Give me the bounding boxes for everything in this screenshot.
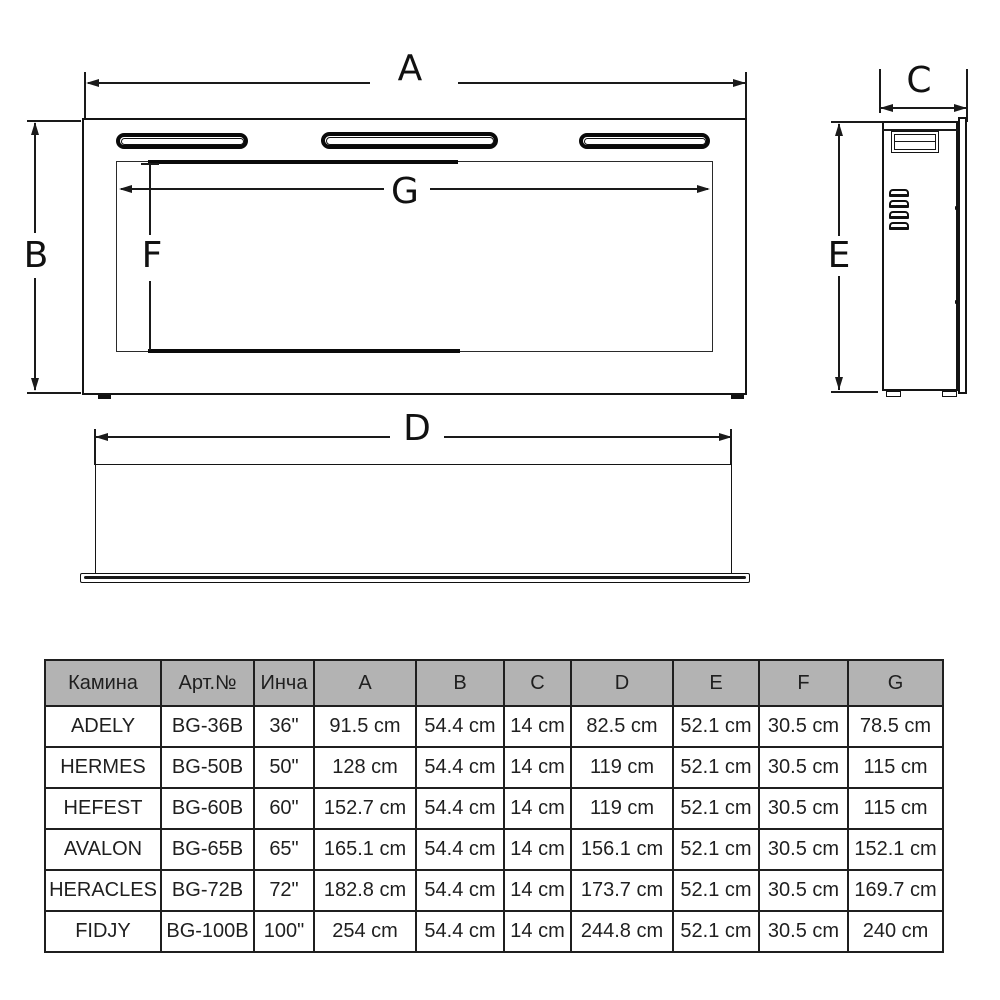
table-cell: 173.7 cm (571, 870, 673, 911)
dim-e-line (838, 124, 840, 236)
dim-d-line (96, 436, 390, 438)
dim-d-line (444, 436, 731, 438)
table-cell: 119 cm (571, 788, 673, 829)
dim-a-line (88, 82, 370, 84)
header-model: Камина (45, 660, 161, 706)
header-c: C (504, 660, 571, 706)
table-cell: HERMES (45, 747, 161, 788)
table-cell: 54.4 cm (416, 706, 504, 747)
table-cell: BG-36B (161, 706, 254, 747)
table-cell: 165.1 cm (314, 829, 416, 870)
dim-label-c: C (903, 63, 934, 99)
table-cell: BG-60B (161, 788, 254, 829)
table-row: HEFEST BG-60B 60" 152.7 cm 54.4 cm 14 cm… (45, 788, 943, 829)
table-cell: 30.5 cm (759, 706, 848, 747)
dim-g-line (430, 188, 708, 190)
louver-vent-icon (889, 222, 909, 230)
table-cell: 30.5 cm (759, 911, 848, 952)
heater-element-top (148, 160, 458, 165)
table-cell: 54.4 cm (416, 870, 504, 911)
dim-d-arrow-right (719, 433, 732, 441)
dim-g-line (121, 188, 384, 190)
table-header-row: Камина Арт.№ Инча A B C D E F G (45, 660, 943, 706)
dim-label-d: D (400, 411, 434, 447)
front-foot-left (98, 395, 111, 399)
table-cell: 14 cm (504, 788, 571, 829)
dim-e-line (838, 276, 840, 390)
dim-g-arrow-right (697, 185, 710, 193)
table-cell: 52.1 cm (673, 788, 759, 829)
table-cell: 91.5 cm (314, 706, 416, 747)
dim-b-arrow-down (31, 378, 39, 391)
vent-slot-inner (584, 138, 706, 145)
front-foot-right (731, 395, 744, 399)
louver-vent-icon (889, 200, 909, 208)
fireplace-dimension-sheet: A B G F C (0, 0, 1000, 1000)
table-cell: 152.1 cm (848, 829, 943, 870)
header-inches: Инча (254, 660, 314, 706)
table-cell: 254 cm (314, 911, 416, 952)
dim-b-arrow-up (31, 122, 39, 135)
control-box-inner (894, 134, 936, 150)
dim-f-line (149, 281, 151, 350)
dim-label-e: E (825, 238, 854, 274)
side-top-lip (876, 121, 884, 123)
vent-slot-inner (326, 137, 494, 145)
header-d: D (571, 660, 673, 706)
table-cell: 169.7 cm (848, 870, 943, 911)
table-cell: 52.1 cm (673, 829, 759, 870)
table-cell: 30.5 cm (759, 870, 848, 911)
dim-b-line (34, 123, 36, 233)
table-cell: HEFEST (45, 788, 161, 829)
vent-slot-right (579, 133, 710, 149)
table-cell: 30.5 cm (759, 788, 848, 829)
base-strip-bar (84, 576, 746, 580)
table-cell: 152.7 cm (314, 788, 416, 829)
dim-label-b: B (21, 238, 52, 274)
header-e: E (673, 660, 759, 706)
table-row: HERACLES BG-72B 72" 182.8 cm 54.4 cm 14 … (45, 870, 943, 911)
dim-a-arrow-right (733, 79, 746, 87)
dim-b-tick-bottom (27, 392, 81, 394)
dim-c-arrow-right (954, 104, 967, 112)
table-cell: 182.8 cm (314, 870, 416, 911)
table-cell: 119 cm (571, 747, 673, 788)
header-b: B (416, 660, 504, 706)
dim-e-arrow-down (835, 377, 843, 390)
dim-c-ext-right (966, 69, 968, 122)
table-cell: 82.5 cm (571, 706, 673, 747)
table-cell: 54.4 cm (416, 829, 504, 870)
header-art-no: Арт.№ (161, 660, 254, 706)
header-f: F (759, 660, 848, 706)
table-cell: 65" (254, 829, 314, 870)
table-cell: 30.5 cm (759, 747, 848, 788)
table-cell: 54.4 cm (416, 911, 504, 952)
dim-e-arrow-up (835, 123, 843, 136)
vent-slot-inner (121, 138, 244, 145)
side-body (882, 121, 958, 391)
table-row: FIDJY BG-100B 100" 254 cm 54.4 cm 14 cm … (45, 911, 943, 952)
louver-vent-icon (889, 189, 909, 197)
table-cell: 244.8 cm (571, 911, 673, 952)
table-cell: ADELY (45, 706, 161, 747)
dim-b-line (34, 278, 36, 390)
table-cell: FIDJY (45, 911, 161, 952)
table-cell: 52.1 cm (673, 747, 759, 788)
table-cell: HERACLES (45, 870, 161, 911)
base-strip (80, 573, 750, 583)
table-row: HERMES BG-50B 50" 128 cm 54.4 cm 14 cm 1… (45, 747, 943, 788)
louver-vent-icon (889, 211, 909, 219)
table-cell: BG-72B (161, 870, 254, 911)
side-foot-right (942, 391, 957, 397)
dim-label-a: A (395, 51, 426, 87)
table-cell: 52.1 cm (673, 870, 759, 911)
table-cell: 72" (254, 870, 314, 911)
table-cell: 14 cm (504, 706, 571, 747)
table-cell: BG-50B (161, 747, 254, 788)
vent-slot-center (321, 132, 498, 149)
table-cell: 52.1 cm (673, 911, 759, 952)
table-cell: 60" (254, 788, 314, 829)
table-row: ADELY BG-36B 36" 91.5 cm 54.4 cm 14 cm 8… (45, 706, 943, 747)
table-cell: 54.4 cm (416, 788, 504, 829)
dim-d-arrow-left (95, 433, 108, 441)
table-cell: 54.4 cm (416, 747, 504, 788)
dim-label-g: G (388, 174, 422, 210)
dim-c-arrow-left (880, 104, 893, 112)
control-box-divider (895, 141, 935, 142)
dim-f-line (149, 165, 151, 235)
table-cell: BG-100B (161, 911, 254, 952)
spec-table: Камина Арт.№ Инча A B C D E F G ADELY BG… (44, 659, 944, 953)
table-cell: 14 cm (504, 870, 571, 911)
table-cell: 14 cm (504, 747, 571, 788)
table-cell: 52.1 cm (673, 706, 759, 747)
table-cell: 240 cm (848, 911, 943, 952)
table-cell: 115 cm (848, 747, 943, 788)
header-a: A (314, 660, 416, 706)
dim-label-f: F (139, 238, 166, 274)
dim-g-arrow-left (119, 185, 132, 193)
dim-a-arrow-left (86, 79, 99, 87)
table-cell: 100" (254, 911, 314, 952)
recess-box (95, 464, 732, 574)
table-row: AVALON BG-65B 65" 165.1 cm 54.4 cm 14 cm… (45, 829, 943, 870)
heater-element-bottom (148, 349, 460, 353)
table-cell: 14 cm (504, 829, 571, 870)
dim-a-line (458, 82, 745, 84)
table-cell: 128 cm (314, 747, 416, 788)
table-cell: 14 cm (504, 911, 571, 952)
vent-slot-left (116, 133, 248, 149)
table-cell: AVALON (45, 829, 161, 870)
table-cell: 78.5 cm (848, 706, 943, 747)
table-cell: 50" (254, 747, 314, 788)
front-flange-edge (958, 117, 967, 394)
table-cell: 36" (254, 706, 314, 747)
dim-e-tick-bottom (831, 391, 878, 393)
header-g: G (848, 660, 943, 706)
side-foot-left (886, 391, 901, 397)
table-cell: 156.1 cm (571, 829, 673, 870)
table-cell: 30.5 cm (759, 829, 848, 870)
table-cell: 115 cm (848, 788, 943, 829)
table-cell: BG-65B (161, 829, 254, 870)
